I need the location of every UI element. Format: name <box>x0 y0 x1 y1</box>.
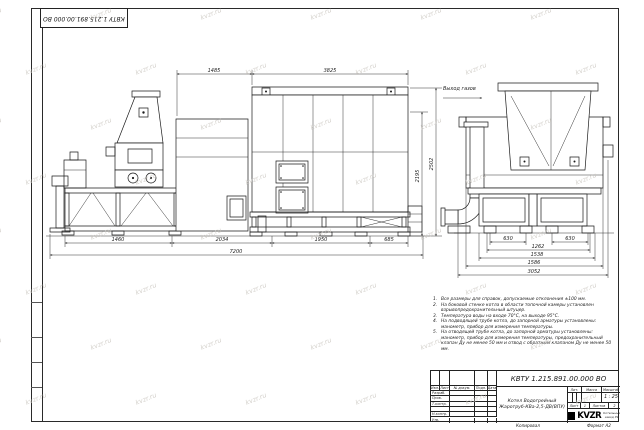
base-frame-left <box>62 188 181 235</box>
name-line2: Жаротруб-КВа-2,5-ДВ(ВПУ) <box>499 405 565 411</box>
dim-1485: 1485 <box>208 68 221 74</box>
note-item: 2.На боковой стенке котла в области топо… <box>433 303 616 314</box>
main-view <box>46 87 424 236</box>
dim-3052: 3052 <box>528 269 541 275</box>
drawing-name: Котел Водогрейный Жаротруб-КВа-2,5-ДВ(ВП… <box>497 387 568 423</box>
drawing-designation: КВТУ 1.215.891.00.000 ВО <box>497 371 620 387</box>
feeder-unit <box>64 152 86 188</box>
dim-630-right: 630 <box>565 236 575 242</box>
note-text: На подводящей трубе котла, до запорной а… <box>441 319 616 330</box>
access-door-lower <box>276 187 308 213</box>
top-collector <box>498 83 598 91</box>
dim-685: 685 <box>384 237 394 243</box>
row-utv: Утв. <box>431 418 450 424</box>
dim-1262: 1262 <box>532 244 545 250</box>
gas-outlet-label: Выход газов <box>443 86 476 92</box>
note-number: 5. <box>433 330 441 352</box>
kvzr-logo-icon <box>568 412 575 420</box>
dim-1538: 1538 <box>531 252 544 258</box>
corner-designation-stamp: КВТУ 1.215.891.00.000 ВО <box>40 8 128 28</box>
copied-label: Копировал <box>495 423 561 428</box>
dim-2034: 2034 <box>216 237 229 243</box>
note-text: На боковой стенке котла в области топочн… <box>441 303 616 314</box>
fuel-hopper <box>106 91 163 187</box>
scale-value: 1 : 25 <box>602 393 620 403</box>
note-number: 2. <box>433 303 441 314</box>
dim-2502: 2502 <box>429 158 435 171</box>
drawing-sheet: { "sheet": { "corner_designation": "КВТУ… <box>0 0 644 430</box>
note-item: 5.На отводящей трубе котла, до запорной … <box>433 330 616 352</box>
company-name: Котельный завод РФ <box>603 412 620 419</box>
access-door-upper <box>276 161 308 183</box>
end-view <box>441 83 614 233</box>
note-text: На отводящей трубе котла, до запорной ар… <box>441 330 616 352</box>
gas-outlet-callout: Выход газов <box>443 86 482 98</box>
kvzr-logo-text: KVZR <box>577 411 601 421</box>
drawing-canvas: 1485 3825 1460 2034 1950 685 7200 21 <box>0 0 644 430</box>
technical-notes: 1.Все размеры для справок, допускаемые о… <box>433 297 616 352</box>
dim-2195: 2195 <box>415 170 421 183</box>
dim-630-left: 630 <box>503 236 513 242</box>
format-label: Формат А2 <box>578 423 620 428</box>
corner-designation-text: КВТУ 1.215.891.00.000 ВО <box>43 15 125 22</box>
base-frame-right <box>250 212 410 236</box>
dim-7200: 7200 <box>230 249 243 255</box>
title-block: Изм. Лист № докум. Подп. Дата Разраб. Пр… <box>430 370 619 422</box>
note-item: 4.На подводящей трубе котла, до запорной… <box>433 319 616 330</box>
company-cell: KVZR Котельный завод РФ <box>568 409 620 423</box>
dim-1460: 1460 <box>112 237 125 243</box>
dim-1950: 1950 <box>315 237 328 243</box>
skid-bases <box>468 188 601 233</box>
support-stand <box>50 176 70 232</box>
boiler-body <box>252 87 408 213</box>
note-number: 4. <box>433 319 441 330</box>
dim-3825: 3825 <box>324 68 337 74</box>
dim-1586: 1586 <box>528 260 541 266</box>
